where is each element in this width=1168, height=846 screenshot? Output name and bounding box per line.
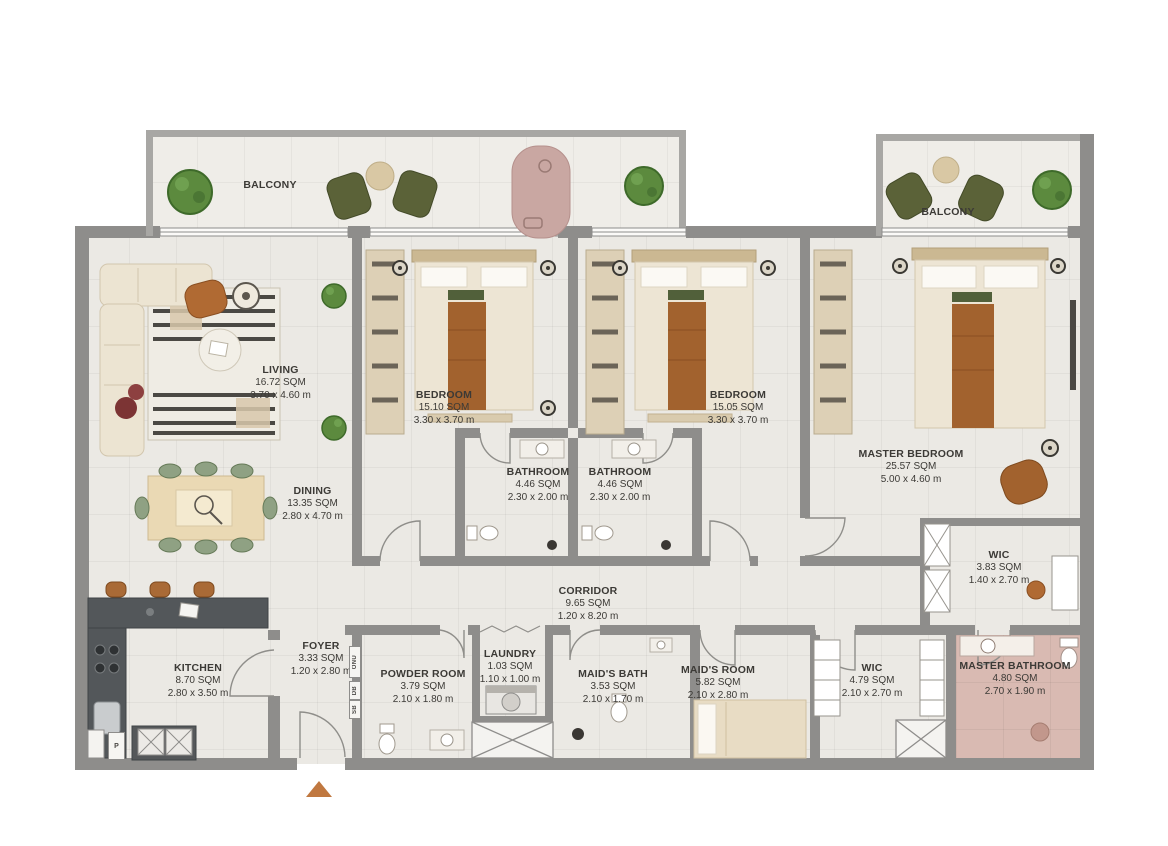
maids-bed bbox=[694, 700, 806, 758]
room-label-wic-corridor: WIC 4.79 SQM 2.10 x 2.70 m bbox=[807, 662, 937, 700]
daybed bbox=[512, 146, 570, 238]
master-armchair bbox=[996, 456, 1051, 509]
room-label-dining: DINING 13.35 SQM 2.80 x 4.70 m bbox=[245, 485, 380, 523]
side-table bbox=[366, 162, 394, 190]
room-label-maids-room: MAID'S ROOM 5.82 SQM 2.10 x 2.80 m bbox=[653, 664, 783, 702]
plan-drawing bbox=[0, 0, 1168, 846]
tv-panel bbox=[1070, 300, 1076, 390]
utility-label-db: DB bbox=[349, 681, 361, 700]
bed bbox=[893, 248, 1076, 456]
washing-machine bbox=[486, 686, 536, 714]
sliding-glass-doors bbox=[160, 228, 1068, 236]
room-label-master-bathroom: MASTER BATHROOM 4.80 SQM 2.70 x 1.90 m bbox=[935, 660, 1095, 698]
room-label-bathroom2: BATHROOM 4.46 SQM 2.30 x 2.00 m bbox=[565, 466, 675, 504]
side-table bbox=[933, 157, 959, 183]
lounge-chair bbox=[390, 168, 439, 220]
utility-label-onu: ONU bbox=[349, 646, 361, 678]
room-label-kitchen: KITCHEN 8.70 SQM 2.80 x 3.50 m bbox=[128, 662, 268, 700]
room-label-bedroom1: BEDROOM 15.10 SQM 3.30 x 3.70 m bbox=[374, 389, 514, 427]
entry-arrow-icon bbox=[306, 781, 332, 797]
kitchen-base-units bbox=[88, 726, 196, 760]
room-label-balcony-left: BALCONY bbox=[215, 179, 325, 192]
indoor-plants bbox=[322, 284, 346, 440]
room-label-corridor: CORRIDOR 9.65 SQM 1.20 x 8.20 m bbox=[518, 585, 658, 623]
plant bbox=[1033, 171, 1071, 209]
utility-label-sb: SB bbox=[349, 700, 361, 719]
plant bbox=[168, 170, 212, 214]
balcony-left-furniture bbox=[168, 146, 663, 238]
room-label-living: LIVING 16.72 SQM 3.70 x 4.60 m bbox=[213, 364, 348, 402]
plant bbox=[625, 167, 663, 205]
room-label-balcony-right: BALCONY bbox=[893, 206, 1003, 219]
room-label-bedroom2: BEDROOM 15.05 SQM 3.30 x 3.70 m bbox=[668, 389, 808, 427]
side-table bbox=[233, 283, 259, 309]
floor-plan-canvas: LIVING 16.72 SQM 3.70 x 4.60 m DINING 13… bbox=[0, 0, 1168, 846]
powder-room-fixtures bbox=[379, 724, 464, 754]
bar-stools bbox=[106, 582, 214, 597]
room-label-wic-master: WIC 3.83 SQM 1.40 x 2.70 m bbox=[939, 549, 1059, 587]
room-label-master-bedroom: MASTER BEDROOM 25.57 SQM 5.00 x 4.60 m bbox=[831, 448, 991, 486]
pantry-label: P bbox=[108, 732, 125, 760]
